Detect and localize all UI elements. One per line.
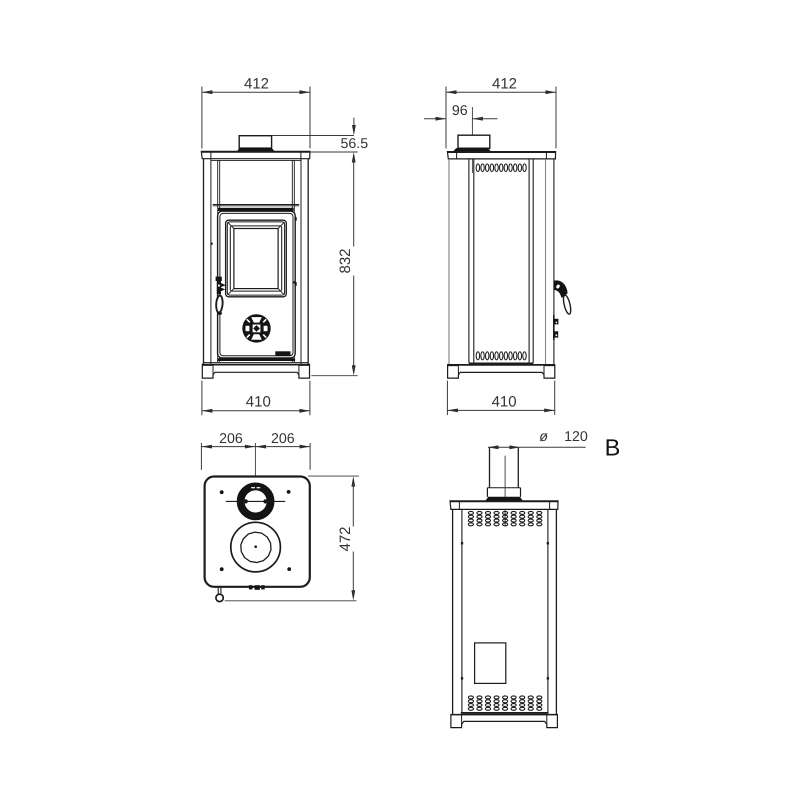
svg-text:B: B: [605, 434, 621, 460]
svg-text:206: 206: [271, 431, 295, 447]
svg-text:412: 412: [492, 76, 517, 93]
svg-text:56.5: 56.5: [340, 136, 368, 152]
svg-text:472: 472: [337, 526, 354, 551]
svg-text:120: 120: [564, 429, 588, 445]
svg-text:832: 832: [337, 248, 354, 273]
svg-text:ø: ø: [539, 429, 548, 445]
svg-text:206: 206: [219, 431, 243, 447]
svg-text:410: 410: [246, 394, 271, 411]
svg-text:412: 412: [244, 76, 269, 93]
svg-text:410: 410: [492, 393, 517, 410]
svg-text:96: 96: [452, 103, 468, 119]
